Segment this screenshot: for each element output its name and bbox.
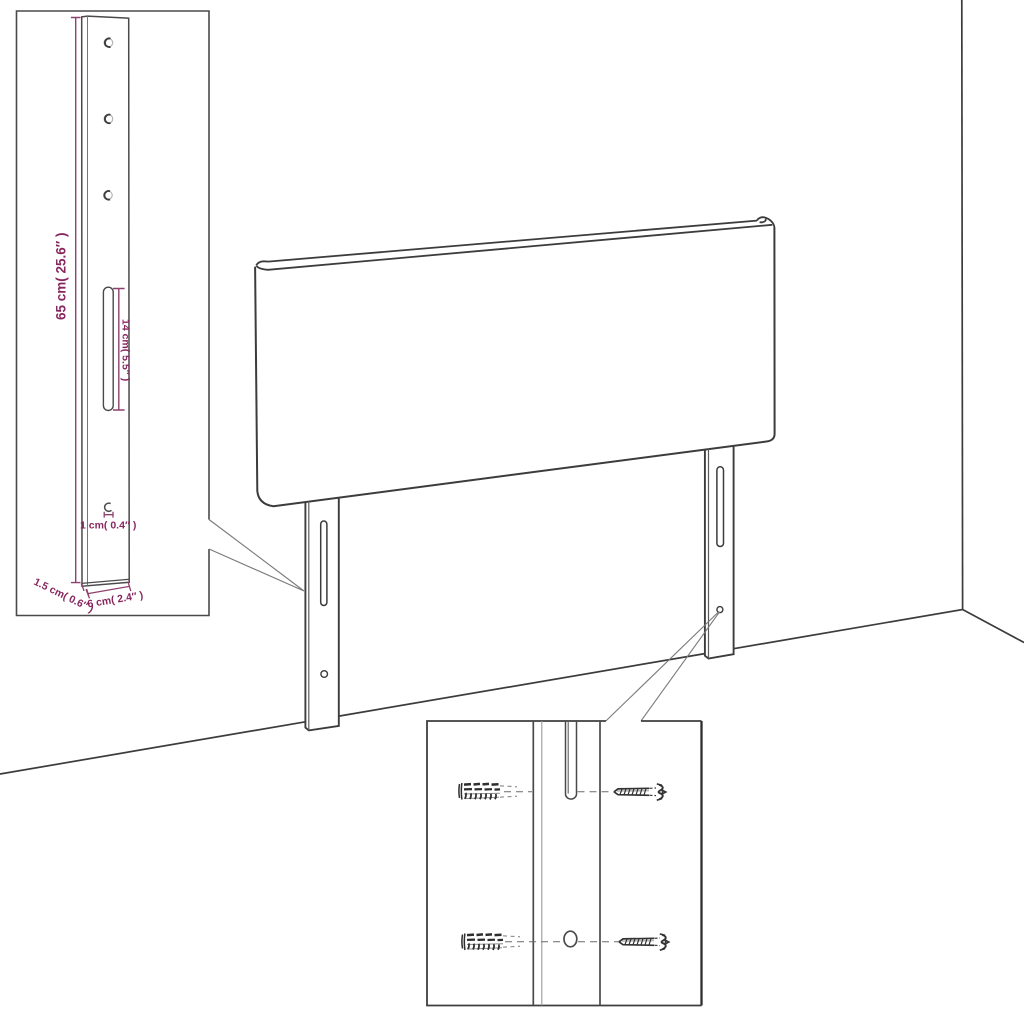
svg-text:65 cm( 25.6″ ): 65 cm( 25.6″ ) [54, 232, 69, 320]
svg-text:1.5 cm( 0.6″ ): 1.5 cm( 0.6″ ) [32, 576, 96, 615]
svg-text:14 cm( 5.5″ ): 14 cm( 5.5″ ) [120, 319, 132, 381]
svg-text:1 cm( 0.4″ ): 1 cm( 0.4″ ) [80, 520, 136, 532]
